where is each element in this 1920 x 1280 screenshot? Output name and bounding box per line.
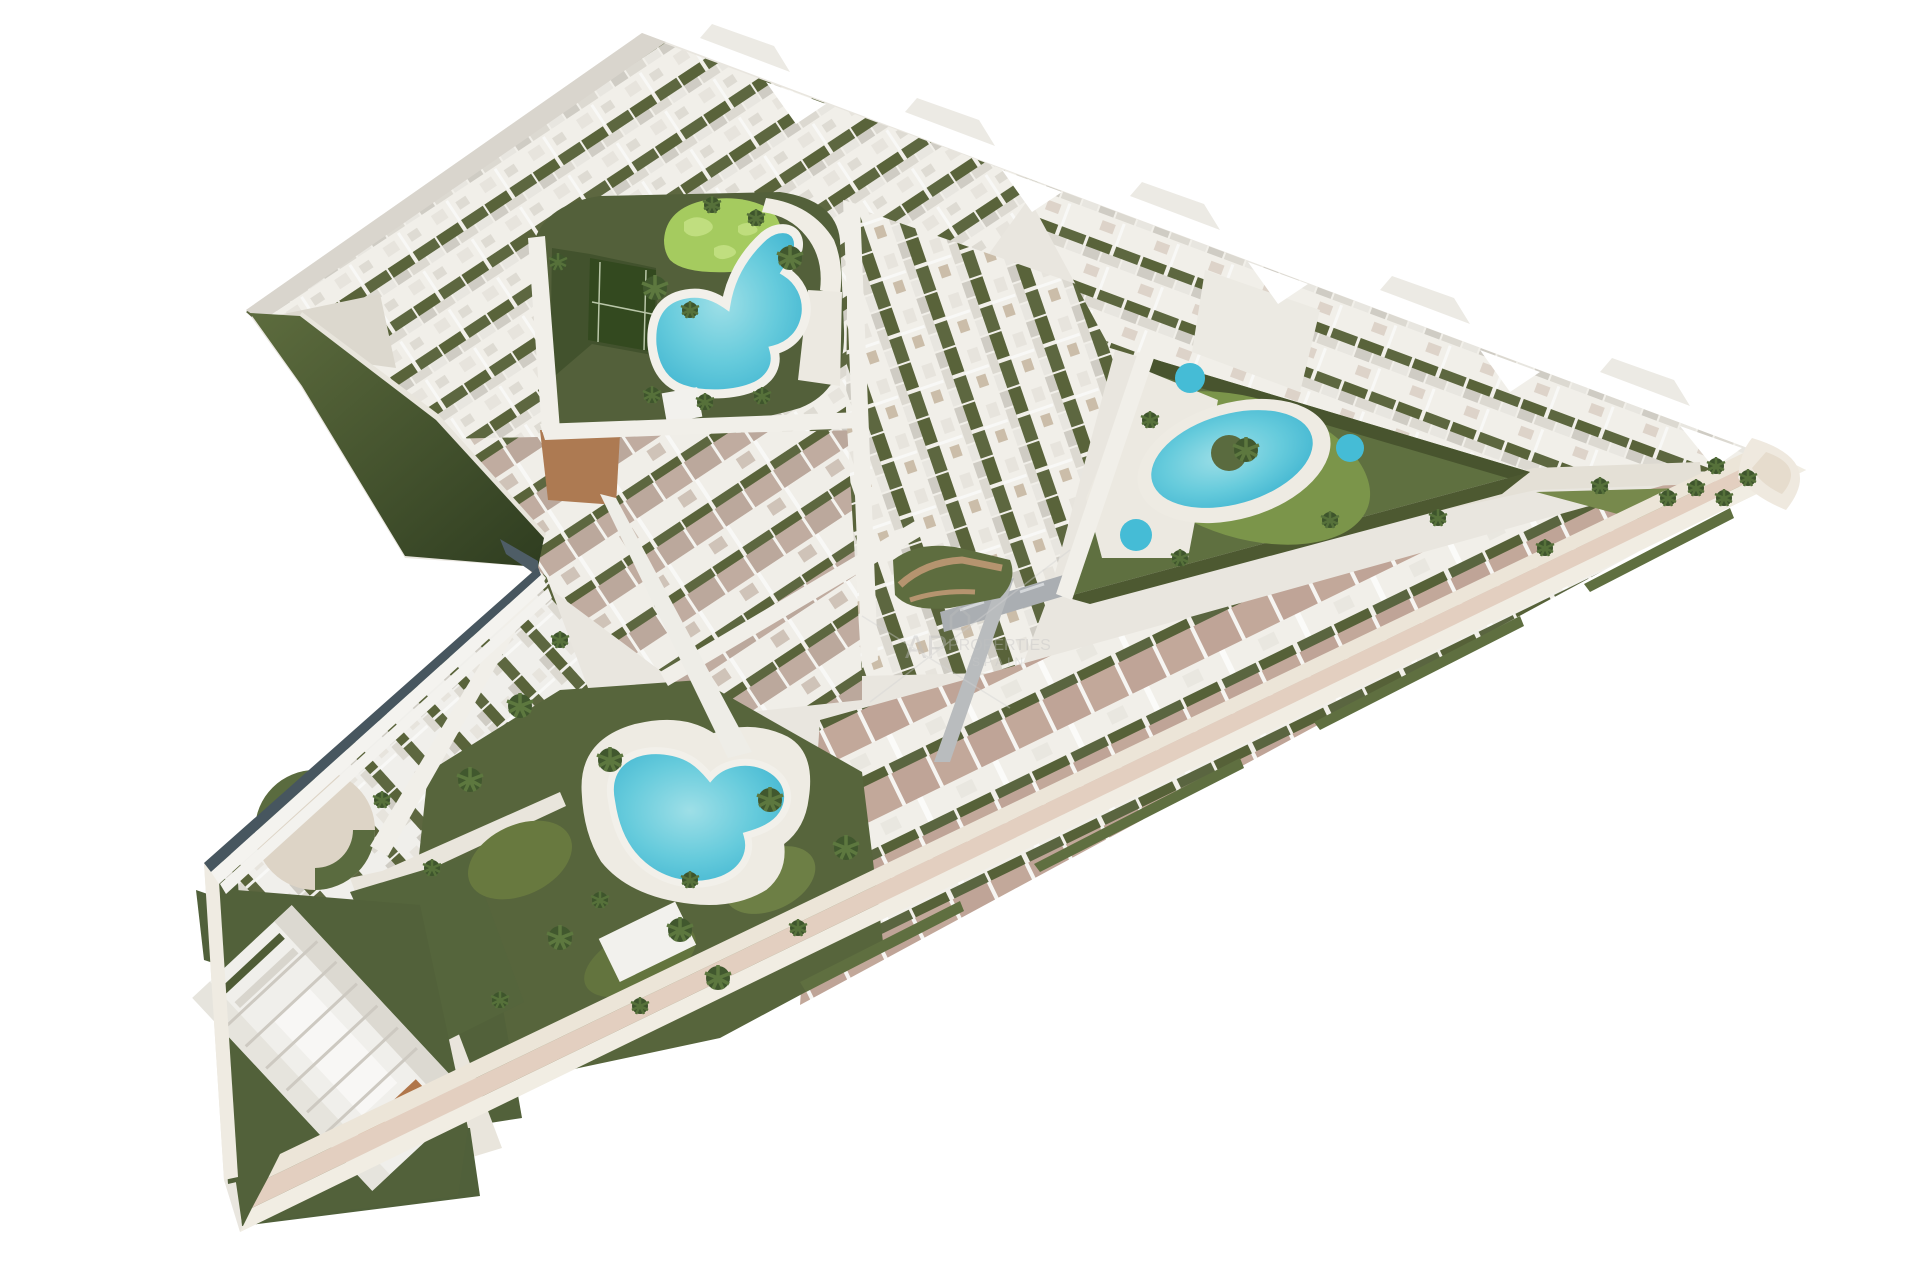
svg-text:PROPERTIES: PROPERTIES	[948, 637, 1051, 654]
svg-text:SPAIN: SPAIN	[972, 655, 1027, 669]
